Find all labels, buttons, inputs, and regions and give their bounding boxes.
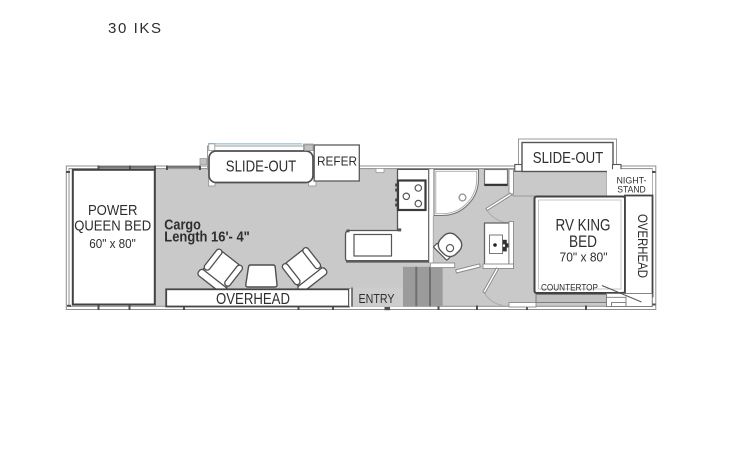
svg-text:30 IKS: 30 IKS	[108, 20, 163, 37]
svg-text:SLIDE-OUT: SLIDE-OUT	[533, 150, 604, 167]
svg-text:REFER: REFER	[317, 154, 357, 169]
svg-text:STAND: STAND	[617, 185, 646, 195]
svg-text:POWER: POWER	[88, 203, 138, 219]
svg-text:RV KING: RV KING	[556, 217, 611, 235]
svg-text:BED: BED	[569, 233, 597, 251]
svg-text:60" x 80": 60" x 80"	[89, 237, 136, 251]
svg-text:COUNTERTOP: COUNTERTOP	[541, 283, 598, 294]
svg-text:SLIDE-OUT: SLIDE-OUT	[226, 158, 297, 175]
svg-text:QUEEN BED: QUEEN BED	[74, 219, 151, 235]
svg-text:Length 16'- 4": Length 16'- 4"	[164, 230, 250, 246]
svg-text:ENTRY: ENTRY	[359, 291, 395, 306]
svg-text:70" x 80": 70" x 80"	[560, 251, 608, 265]
svg-text:OVERHEAD: OVERHEAD	[635, 214, 650, 278]
svg-text:OVERHEAD: OVERHEAD	[216, 291, 290, 308]
